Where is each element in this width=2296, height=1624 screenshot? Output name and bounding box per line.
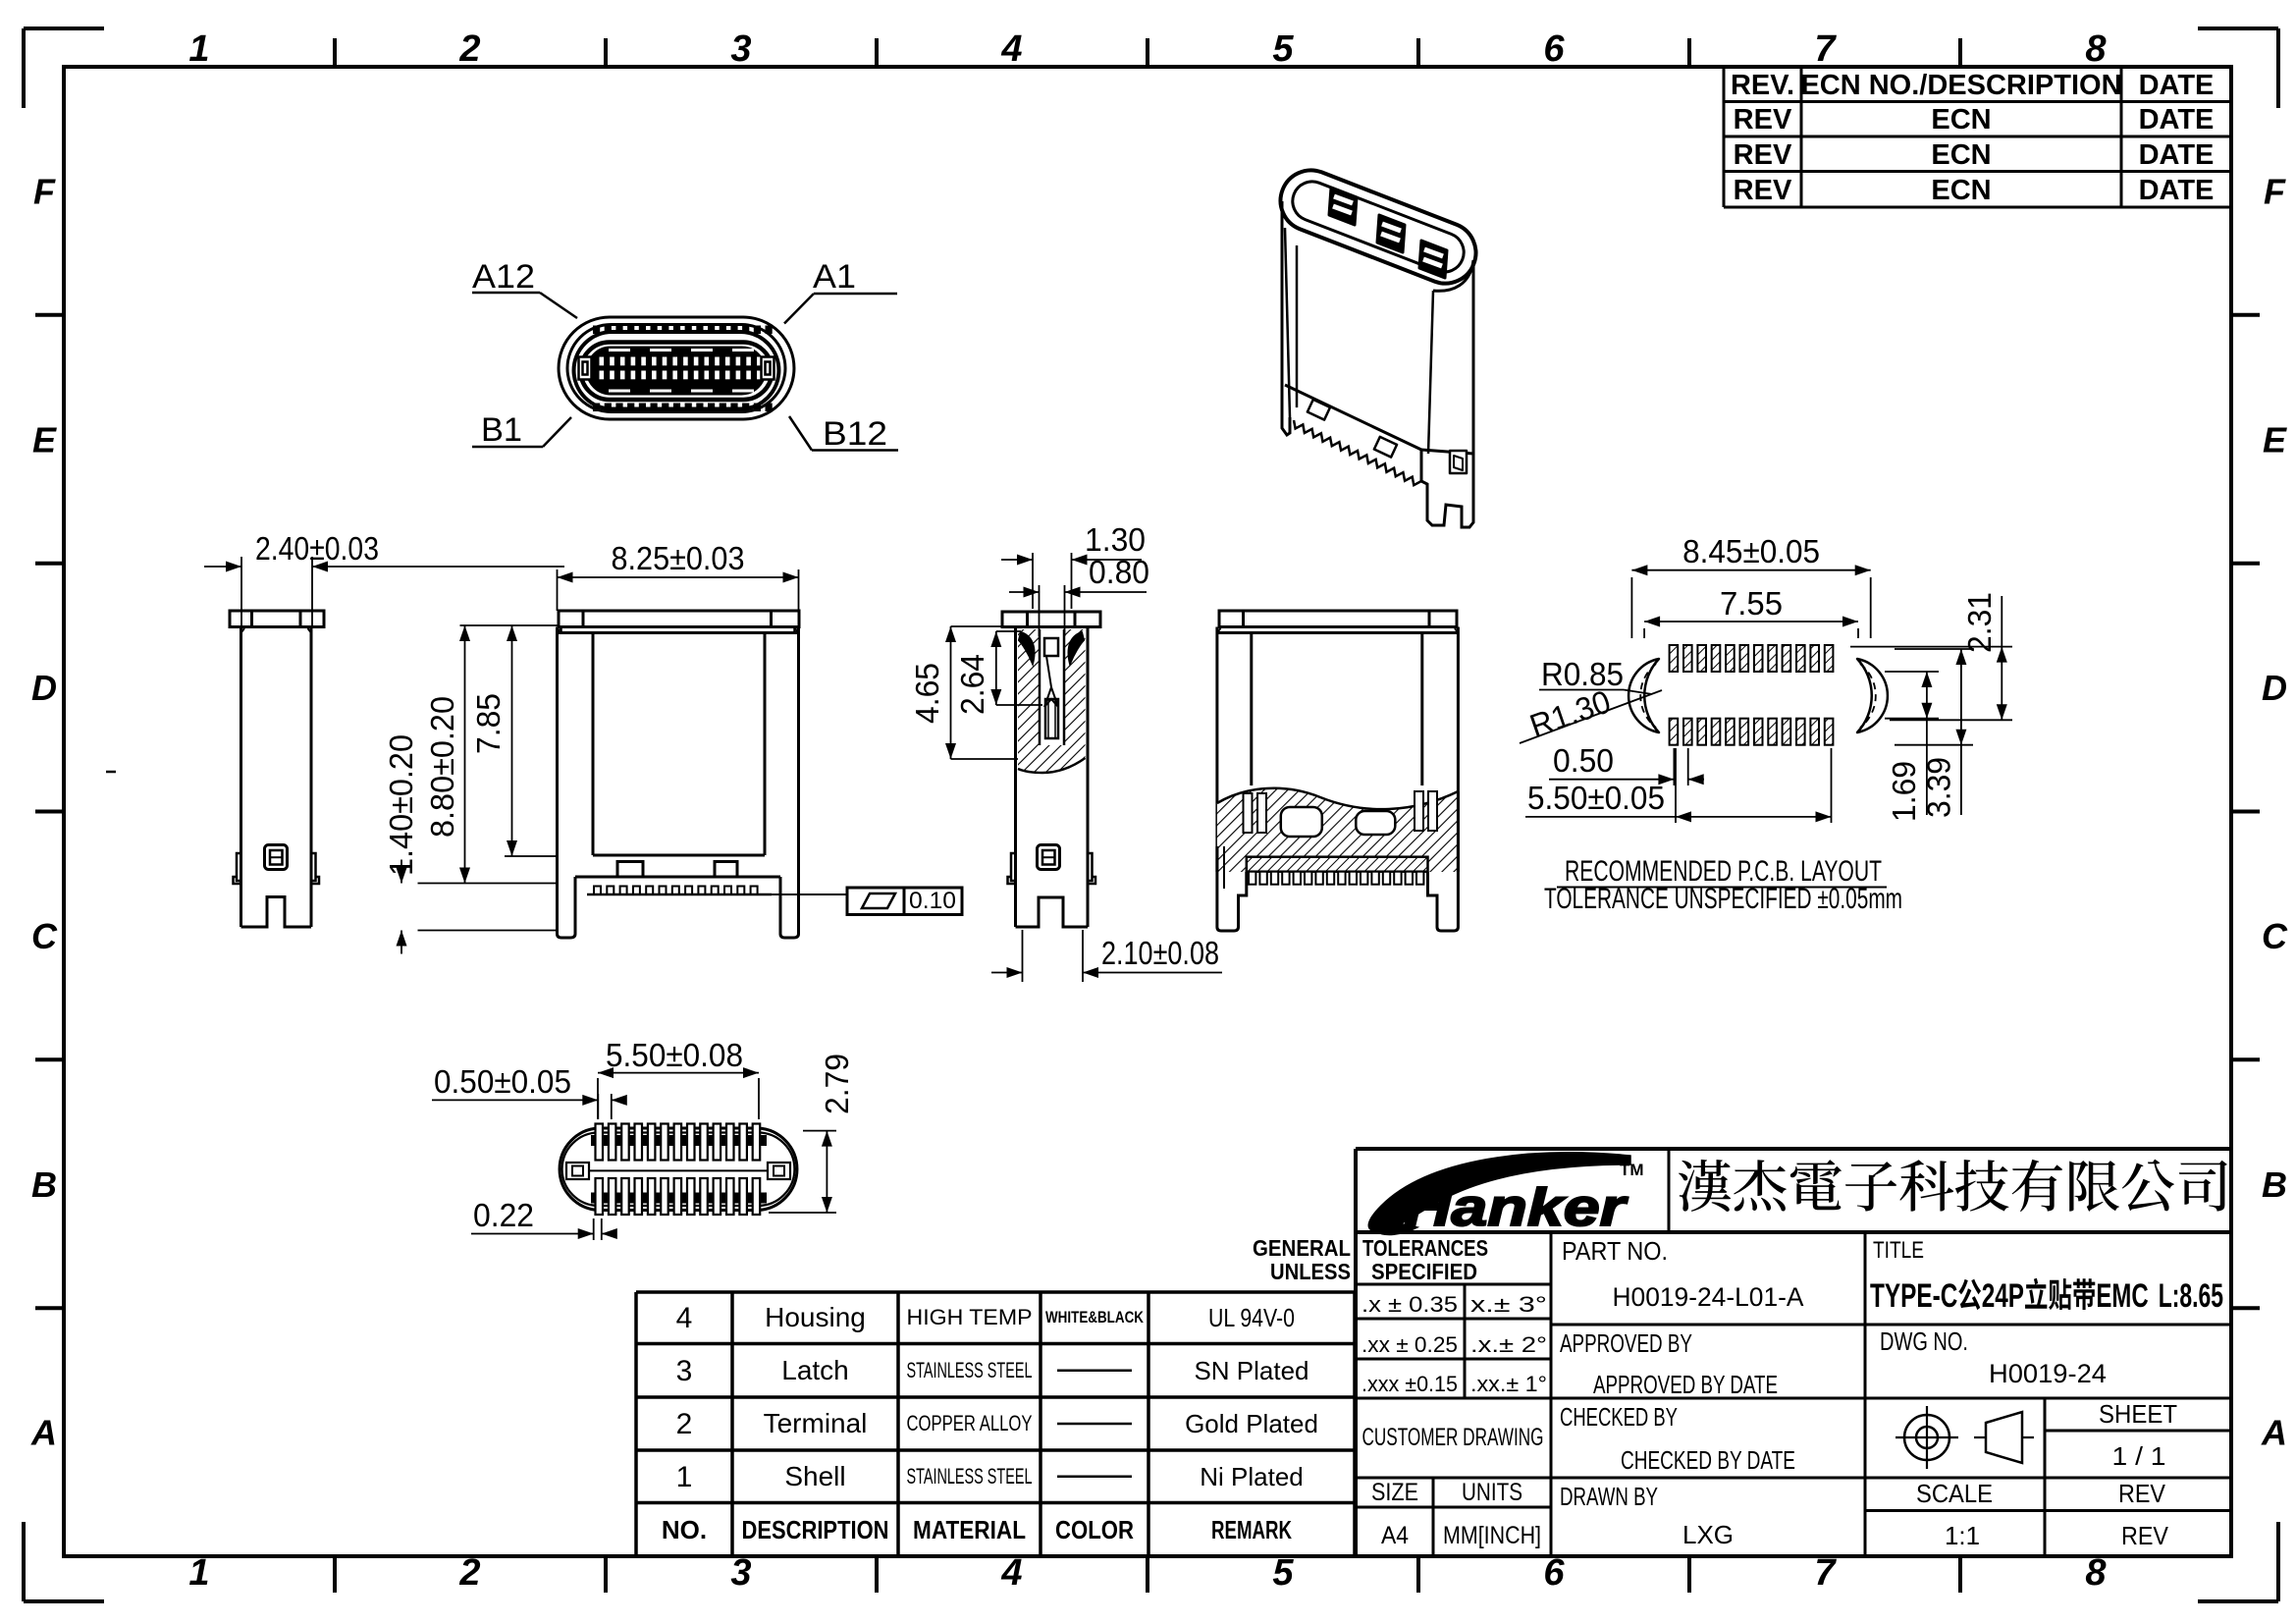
svg-text:LXG: LXG: [1682, 1520, 1734, 1549]
svg-text:Terminal: Terminal: [764, 1408, 868, 1438]
svg-text:Latch: Latch: [781, 1355, 849, 1385]
svg-text:5.50±0.05: 5.50±0.05: [1527, 780, 1665, 816]
svg-text:2: 2: [458, 1552, 480, 1594]
svg-text:REMARK: REMARK: [1211, 1515, 1292, 1544]
svg-text:H0019-24: H0019-24: [1989, 1359, 2107, 1388]
svg-text:1.40±0.20: 1.40±0.20: [383, 734, 419, 876]
svg-text:Hanker: Hanker: [1405, 1178, 1629, 1237]
svg-text:1: 1: [676, 1461, 693, 1493]
svg-text:7.85: 7.85: [470, 693, 507, 754]
svg-text:TOLERANCES: TOLERANCES: [1362, 1235, 1488, 1261]
svg-text:0.50±0.05: 0.50±0.05: [434, 1063, 571, 1100]
svg-text:TM: TM: [1620, 1161, 1644, 1179]
svg-text:8: 8: [2085, 1552, 2107, 1594]
svg-text:0.50: 0.50: [1553, 742, 1614, 779]
svg-text:3: 3: [676, 1355, 693, 1387]
svg-text:2.10±0.08: 2.10±0.08: [1101, 935, 1219, 971]
svg-text:NO.: NO.: [662, 1515, 707, 1544]
svg-text:REV.: REV.: [1731, 70, 1794, 101]
svg-text:CUSTOMER DRAWING: CUSTOMER DRAWING: [1362, 1424, 1544, 1451]
svg-text:ECN: ECN: [1931, 175, 1991, 206]
svg-text:PART NO.: PART NO.: [1562, 1236, 1668, 1266]
svg-text:5: 5: [1272, 28, 1294, 70]
svg-text:7.55: 7.55: [1720, 585, 1783, 622]
svg-text:STAINLESS STEEL: STAINLESS STEEL: [907, 1464, 1033, 1489]
svg-text:A: A: [30, 1413, 57, 1453]
svg-text:UNITS: UNITS: [1462, 1479, 1522, 1506]
svg-text:STAINLESS STEEL: STAINLESS STEEL: [907, 1358, 1033, 1382]
svg-text:REV: REV: [1734, 104, 1792, 135]
svg-text:.xx ± 0.25: .xx ± 0.25: [1362, 1332, 1458, 1357]
svg-text:F: F: [2264, 171, 2286, 211]
svg-text:2.40±0.03: 2.40±0.03: [255, 530, 379, 567]
svg-text:.xx.± 1°: .xx.± 1°: [1470, 1372, 1547, 1396]
svg-text:0.10: 0.10: [909, 888, 956, 914]
svg-text:COPPER ALLOY: COPPER ALLOY: [907, 1411, 1033, 1435]
svg-text:ECN NO./DESCRIPTION: ECN NO./DESCRIPTION: [1800, 70, 2121, 101]
svg-text:REV: REV: [2121, 1521, 2169, 1550]
svg-text:B1: B1: [481, 411, 522, 449]
svg-text:Ni Plated: Ni Plated: [1200, 1462, 1304, 1491]
svg-text:MM[INCH]: MM[INCH]: [1443, 1522, 1541, 1549]
svg-text:SPECIFIED: SPECIFIED: [1371, 1259, 1477, 1284]
svg-text:A: A: [2261, 1413, 2287, 1453]
svg-text:1 / 1: 1 / 1: [2112, 1441, 2166, 1471]
svg-text:7: 7: [1814, 28, 1837, 70]
svg-text:1: 1: [188, 1552, 209, 1594]
svg-text:3.39: 3.39: [1921, 757, 1957, 818]
svg-text:A1: A1: [813, 258, 856, 296]
svg-text:2.79: 2.79: [819, 1054, 855, 1114]
svg-text:Housing: Housing: [765, 1302, 866, 1332]
svg-text:DATE: DATE: [2139, 139, 2215, 171]
svg-text:REV: REV: [1734, 175, 1792, 206]
svg-text:APPROVED BY: APPROVED BY: [1560, 1328, 1692, 1358]
svg-text:SCALE: SCALE: [1916, 1479, 1993, 1508]
svg-text:D: D: [31, 668, 57, 708]
svg-text:6: 6: [1543, 1552, 1565, 1594]
svg-text:4.65: 4.65: [909, 663, 945, 724]
svg-text:MATERIAL: MATERIAL: [913, 1515, 1026, 1544]
svg-text:APPROVED BY DATE: APPROVED BY DATE: [1593, 1370, 1778, 1399]
svg-text:Shell: Shell: [784, 1461, 845, 1491]
svg-text:SN Plated: SN Plated: [1194, 1356, 1308, 1385]
svg-text:DATE: DATE: [2139, 175, 2215, 206]
svg-text:4: 4: [1000, 28, 1022, 70]
svg-text:8.25±0.03: 8.25±0.03: [612, 540, 745, 576]
svg-text:REV: REV: [1734, 139, 1792, 171]
svg-text:B: B: [31, 1164, 57, 1205]
svg-text:REV: REV: [2118, 1479, 2166, 1508]
svg-text:WHITE&BLACK: WHITE&BLACK: [1045, 1308, 1145, 1326]
svg-text:SIZE: SIZE: [1371, 1479, 1418, 1506]
svg-text:SHEET: SHEET: [2099, 1399, 2177, 1429]
svg-text:TOLERANCE UNSPECIFIED ±0.05m: TOLERANCE UNSPECIFIED ±0.05mm: [1544, 883, 1902, 915]
svg-text:1.30: 1.30: [1085, 521, 1146, 558]
svg-text:2.31: 2.31: [1961, 592, 1998, 653]
svg-text:8: 8: [2085, 28, 2107, 70]
svg-text:4: 4: [1000, 1552, 1022, 1594]
svg-text:4: 4: [676, 1302, 693, 1334]
svg-text:UNLESS: UNLESS: [1270, 1259, 1351, 1284]
svg-text:EMC: EMC: [2096, 1277, 2148, 1315]
svg-text:COLOR: COLOR: [1055, 1515, 1134, 1544]
svg-text:B12: B12: [823, 415, 887, 453]
svg-text:.xxx ±0.15: .xxx ±0.15: [1362, 1372, 1458, 1396]
svg-text:Gold Plated: Gold Plated: [1185, 1409, 1318, 1438]
svg-text:.x.± 2°: .x.± 2°: [1470, 1332, 1547, 1357]
svg-text:2.64: 2.64: [954, 654, 990, 715]
svg-text:2: 2: [676, 1408, 693, 1440]
svg-text:DESCRIPTION: DESCRIPTION: [742, 1515, 889, 1544]
svg-text:TYPE-C: TYPE-C: [1870, 1277, 1957, 1315]
svg-text:UL 94V-0: UL 94V-0: [1208, 1303, 1295, 1332]
svg-text:5: 5: [1272, 1552, 1294, 1594]
svg-text:DRAWN BY: DRAWN BY: [1560, 1482, 1658, 1511]
svg-text:.x ± 0.35: .x ± 0.35: [1362, 1292, 1458, 1317]
svg-text:GENERAL: GENERAL: [1253, 1235, 1351, 1261]
svg-text:x.± 3°: x.± 3°: [1470, 1292, 1547, 1317]
svg-text:5.50±0.08: 5.50±0.08: [606, 1037, 743, 1073]
svg-text:1.69: 1.69: [1886, 761, 1922, 822]
svg-text:E: E: [32, 419, 57, 460]
svg-text:2: 2: [458, 28, 480, 70]
svg-text:HIGH TEMP: HIGH TEMP: [907, 1305, 1033, 1329]
svg-text:D: D: [2262, 668, 2287, 708]
svg-text:1:1: 1:1: [1945, 1521, 1980, 1550]
svg-text:DATE: DATE: [2139, 104, 2215, 135]
svg-text:24P: 24P: [1982, 1277, 2024, 1315]
svg-text:ECN: ECN: [1931, 139, 1991, 171]
svg-text:C: C: [31, 916, 58, 956]
svg-text:DATE: DATE: [2139, 70, 2215, 101]
svg-text:0.22: 0.22: [473, 1197, 534, 1233]
svg-text:H0019-24-L01-A: H0019-24-L01-A: [1613, 1282, 1804, 1312]
svg-text:ECN: ECN: [1931, 104, 1991, 135]
svg-text:E: E: [2263, 419, 2287, 460]
svg-text:8.45±0.05: 8.45±0.05: [1682, 533, 1820, 569]
svg-text:TITLE: TITLE: [1873, 1237, 1924, 1264]
svg-text:A12: A12: [472, 258, 535, 296]
svg-text:R0.85: R0.85: [1541, 656, 1624, 692]
svg-text:C: C: [2262, 916, 2288, 956]
svg-text:7: 7: [1814, 1552, 1837, 1594]
svg-text:DWG NO.: DWG NO.: [1880, 1326, 1968, 1356]
svg-text:F: F: [33, 171, 56, 211]
svg-text:1: 1: [188, 28, 209, 70]
svg-text:3: 3: [730, 28, 751, 70]
svg-text:8.80±0.20: 8.80±0.20: [424, 696, 460, 838]
svg-text:A4: A4: [1381, 1522, 1409, 1549]
svg-text:6: 6: [1543, 28, 1565, 70]
svg-text:CHECKED BY DATE: CHECKED BY DATE: [1621, 1445, 1795, 1475]
svg-text:3: 3: [730, 1552, 751, 1594]
svg-text:B: B: [2262, 1164, 2287, 1205]
svg-text:0.80: 0.80: [1089, 554, 1149, 590]
svg-text:CHECKED BY: CHECKED BY: [1560, 1402, 1678, 1432]
svg-text:L:8.65: L:8.65: [2159, 1277, 2223, 1315]
